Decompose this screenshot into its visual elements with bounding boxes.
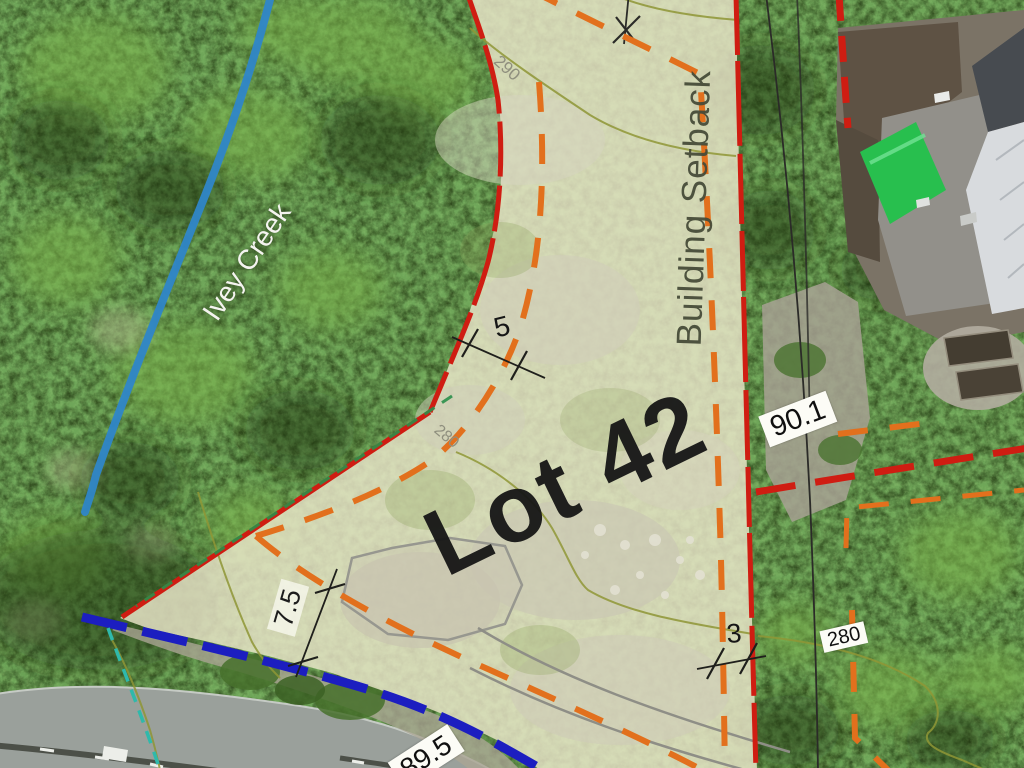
site-plan-canvas: [0, 0, 1024, 768]
dim-3-label: 3: [726, 620, 743, 648]
aerial-site-plan: Lot 42 Building Setback Ivey Creek 290 2…: [0, 0, 1024, 768]
building-setback-label: Building Setback: [672, 69, 717, 347]
